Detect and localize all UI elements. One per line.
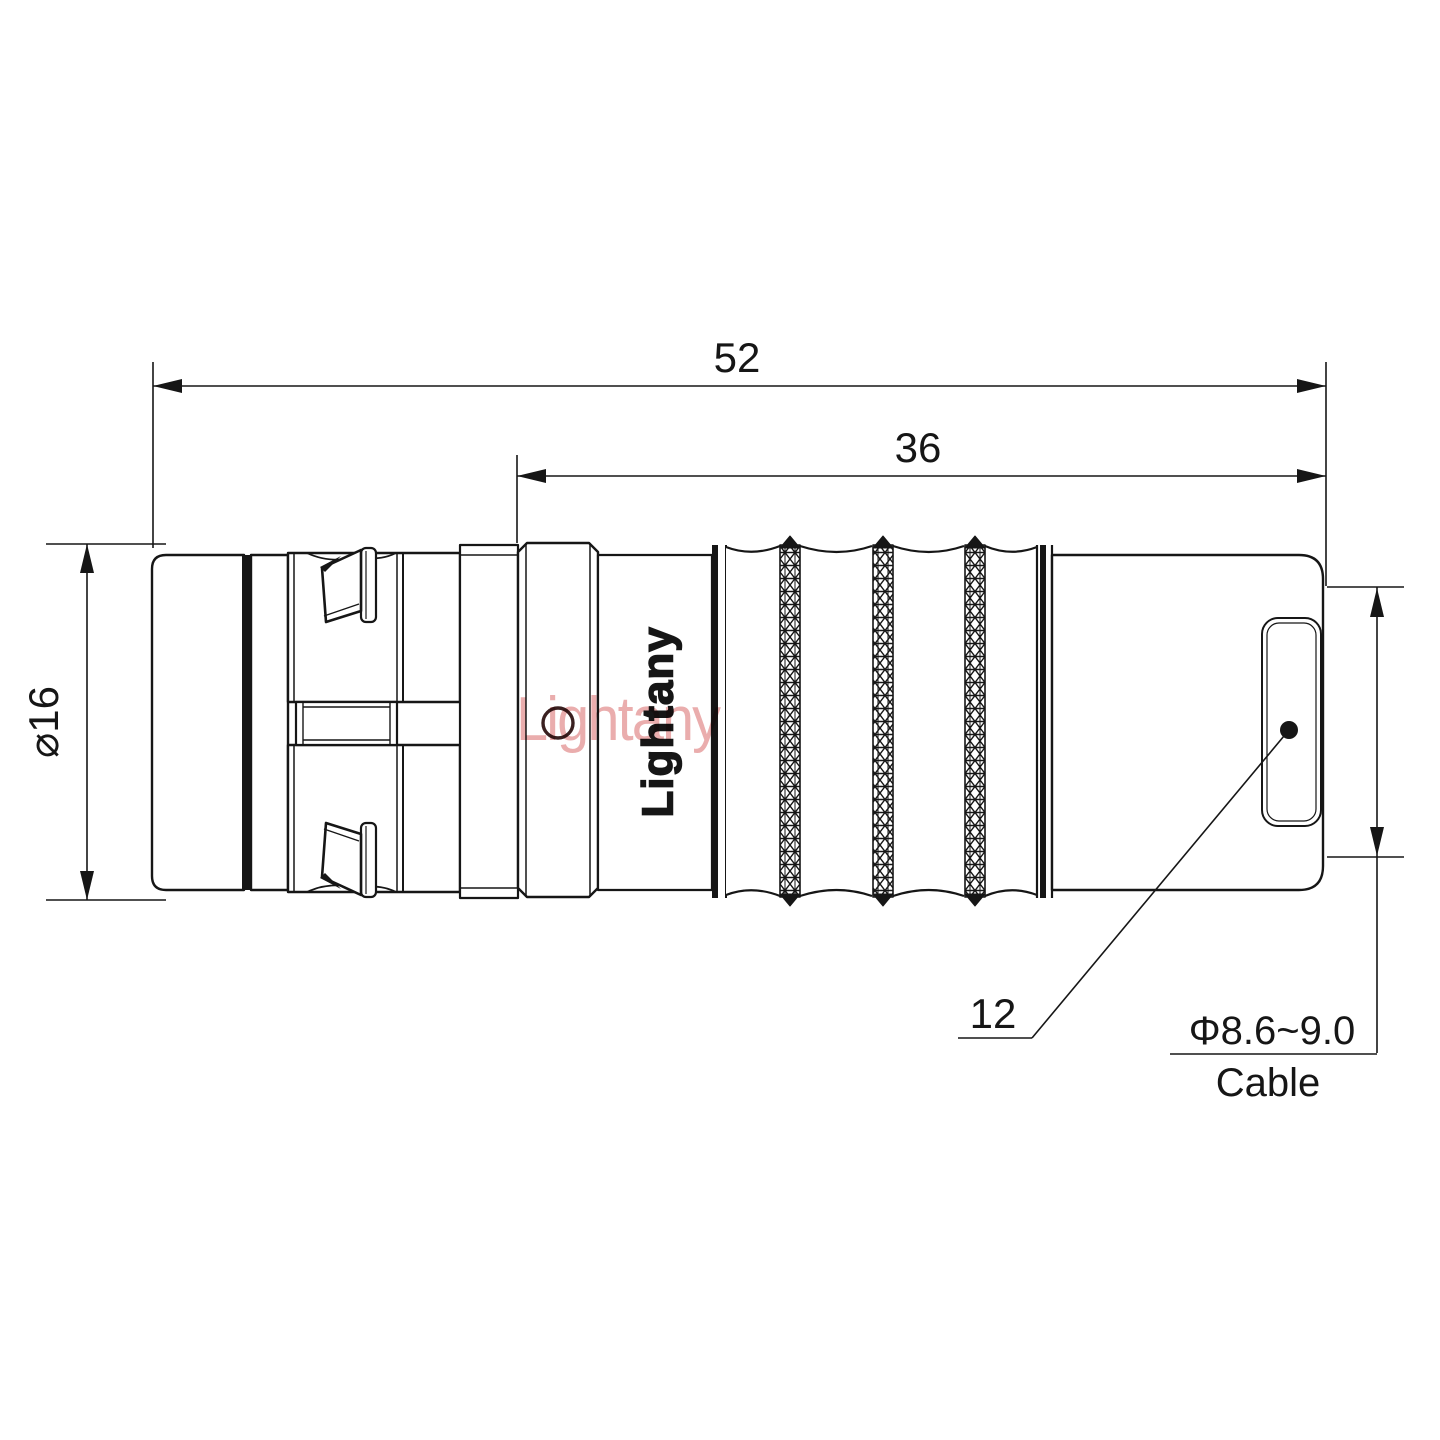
dim-body-diameter-value: ⌀16 (20, 686, 67, 758)
dim-cable-label: Cable (1216, 1061, 1321, 1105)
engraved-brand: Lightany (634, 626, 683, 817)
drawing-canvas: Lightany 52 36 (0, 0, 1440, 1440)
dim-cable-range-value: Φ8.6~9.0 (1189, 1009, 1355, 1053)
dim-body-diameter: ⌀16 (20, 544, 166, 900)
dim-overall-length-value: 52 (714, 334, 761, 381)
dim-rear-length: 36 (517, 424, 1326, 543)
knurl-band-1 (780, 536, 800, 906)
step-section (460, 545, 518, 898)
knurl-flange-right (1037, 545, 1052, 898)
coupling-ring (518, 543, 598, 897)
leader-dot (1280, 721, 1298, 739)
knurl-flange-left (712, 545, 728, 898)
vent-hole (543, 708, 573, 738)
connector-body (152, 536, 1323, 906)
dim-rear-length-value: 36 (895, 424, 942, 471)
dim-nut-size-value: 12 (970, 990, 1017, 1037)
knurl-band-3 (965, 536, 985, 906)
front-cap (152, 555, 244, 890)
collar-band (242, 555, 251, 890)
connector-drawing-svg: Lightany 52 36 (0, 0, 1440, 1440)
knurl-band-2 (873, 536, 893, 906)
front-shell-section (251, 555, 288, 890)
